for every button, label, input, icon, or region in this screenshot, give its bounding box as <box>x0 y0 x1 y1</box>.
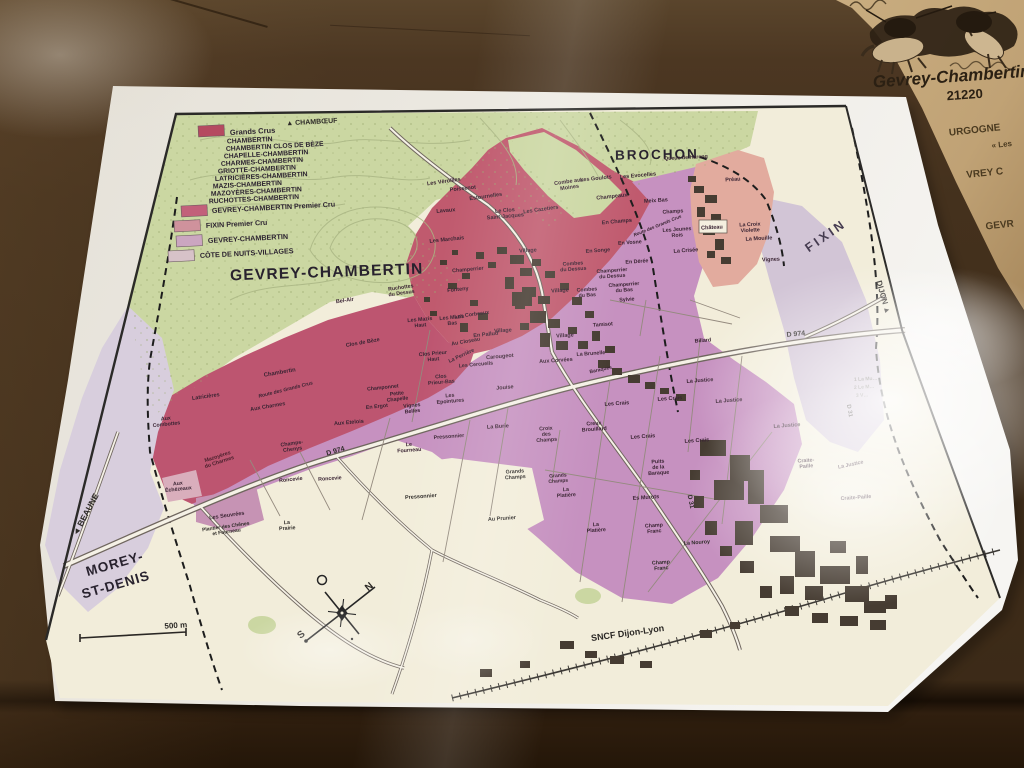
map-label: Craite-Paille <box>797 457 815 470</box>
scale-label: 500 m <box>164 620 187 631</box>
map-photo-canvas: Gevrey-Chambertin 21220 URGOGNE« LesVREY… <box>0 0 1024 768</box>
map-label: Village <box>556 332 574 339</box>
map-label: VignesBelles <box>403 402 421 415</box>
map-label: Château <box>701 224 723 231</box>
green-patch <box>575 588 601 604</box>
legend-swatch <box>181 205 208 217</box>
vineyard-map-print: Grands CrusCHAMBERTINCHAMBERTIN CLOS DE … <box>45 106 1000 706</box>
glare-obscured-list: 1 La Mu… <box>854 376 878 383</box>
map-label: Combesdu Bas <box>577 286 598 299</box>
map-label: La CroixViolette <box>739 221 761 234</box>
legend-swatch <box>168 250 195 262</box>
legend-swatch <box>198 125 225 137</box>
map-label: GrandsChamps <box>504 468 526 481</box>
map-label: GrandsChamps <box>548 472 569 485</box>
map-label: ChampFranc <box>645 522 664 535</box>
legend-swatch <box>176 235 203 247</box>
map-label: Village <box>519 247 537 254</box>
green-patch <box>248 616 276 634</box>
map-label: Préau <box>725 176 741 183</box>
photo-of-vineyard-map-on-table: Gevrey-Chambertin 21220 URGOGNE« LesVREY… <box>0 0 1024 768</box>
map-label: Vignes <box>762 257 780 264</box>
map-label: Village <box>551 287 569 294</box>
legend-swatch <box>174 220 201 232</box>
glare-obscured-list: 3 V… <box>856 392 869 399</box>
map-label: ChampFranc <box>652 559 671 572</box>
map-label: Combesdu Dessus <box>560 260 587 273</box>
map-label: Champerrierdu Dessus <box>596 267 628 281</box>
map-label: Sylvie <box>619 296 635 303</box>
map-label: Billard <box>694 337 711 344</box>
glare-obscured-list: 2 Le M… <box>854 384 875 391</box>
wine-list-postal-code: 21220 <box>946 86 983 103</box>
